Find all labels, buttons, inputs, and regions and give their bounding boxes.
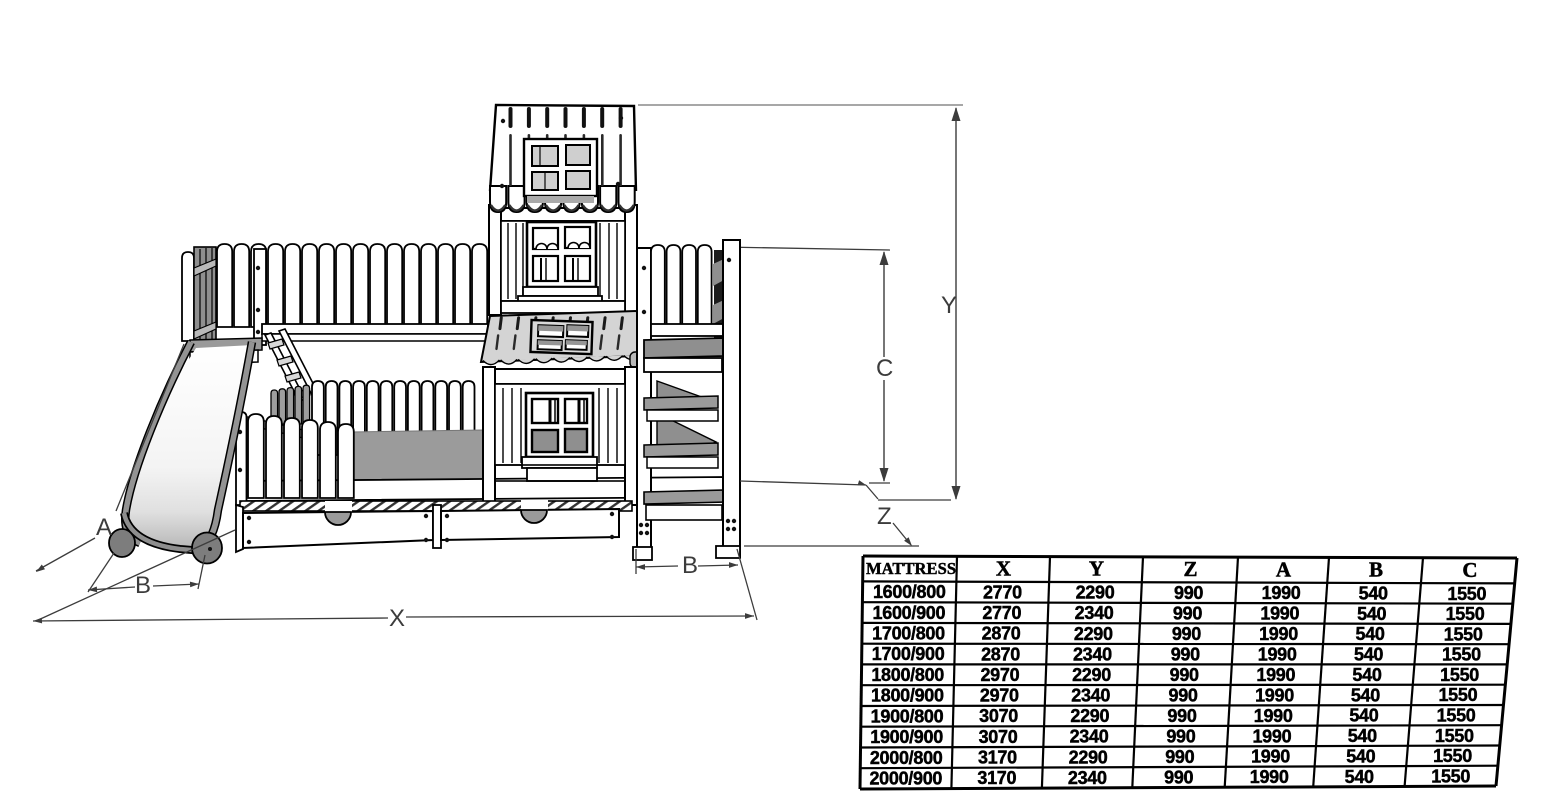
- svg-text:2340: 2340: [1071, 686, 1110, 706]
- svg-text:1600/800: 1600/800: [873, 582, 946, 602]
- svg-text:2870: 2870: [981, 644, 1020, 664]
- svg-text:2340: 2340: [1075, 603, 1114, 623]
- svg-text:2340: 2340: [1073, 644, 1112, 664]
- svg-text:Y: Y: [941, 292, 957, 319]
- svg-text:990: 990: [1171, 644, 1200, 664]
- svg-text:2770: 2770: [983, 582, 1022, 602]
- svg-text:1990: 1990: [1255, 685, 1294, 705]
- svg-text:Z: Z: [1183, 557, 1197, 581]
- svg-text:990: 990: [1174, 583, 1203, 603]
- svg-text:MATTRESS: MATTRESS: [866, 559, 956, 578]
- svg-text:990: 990: [1167, 706, 1196, 726]
- svg-text:2970: 2970: [980, 665, 1019, 685]
- svg-text:540: 540: [1351, 685, 1380, 705]
- svg-text:2340: 2340: [1068, 768, 1107, 788]
- svg-text:540: 540: [1356, 624, 1385, 644]
- svg-text:990: 990: [1172, 624, 1201, 644]
- svg-text:C: C: [876, 355, 893, 382]
- svg-text:1550: 1550: [1431, 766, 1470, 786]
- svg-text:2290: 2290: [1072, 665, 1111, 685]
- svg-text:1900/900: 1900/900: [870, 727, 943, 747]
- svg-text:1990: 1990: [1258, 645, 1297, 665]
- svg-text:1550: 1550: [1437, 706, 1476, 726]
- svg-text:1550: 1550: [1442, 645, 1481, 665]
- svg-text:C: C: [1462, 558, 1477, 582]
- svg-text:1990: 1990: [1256, 665, 1295, 685]
- svg-text:540: 540: [1354, 645, 1383, 665]
- svg-text:2870: 2870: [982, 624, 1021, 644]
- svg-text:2000/900: 2000/900: [869, 769, 942, 789]
- svg-text:1550: 1550: [1435, 726, 1474, 746]
- svg-text:2340: 2340: [1070, 727, 1109, 747]
- svg-text:540: 540: [1345, 767, 1374, 787]
- svg-text:Z: Z: [877, 503, 892, 530]
- svg-text:1990: 1990: [1260, 604, 1299, 624]
- svg-text:2970: 2970: [980, 686, 1019, 706]
- svg-text:1550: 1550: [1438, 685, 1477, 705]
- svg-text:1600/900: 1600/900: [873, 603, 946, 623]
- svg-text:990: 990: [1170, 665, 1199, 685]
- svg-text:1990: 1990: [1250, 767, 1289, 787]
- svg-text:540: 540: [1346, 746, 1375, 766]
- svg-text:1700/800: 1700/800: [872, 624, 945, 644]
- svg-text:990: 990: [1164, 768, 1193, 788]
- svg-text:2290: 2290: [1069, 747, 1108, 767]
- svg-text:540: 540: [1348, 726, 1377, 746]
- svg-text:1990: 1990: [1254, 706, 1293, 726]
- svg-text:1800/800: 1800/800: [871, 665, 944, 685]
- svg-text:2290: 2290: [1076, 583, 1115, 603]
- svg-text:540: 540: [1357, 604, 1386, 624]
- svg-text:1800/900: 1800/900: [871, 686, 944, 706]
- svg-text:B: B: [1369, 558, 1383, 582]
- svg-text:Y: Y: [1089, 557, 1104, 581]
- svg-text:1550: 1550: [1444, 624, 1483, 644]
- svg-text:2770: 2770: [982, 603, 1021, 623]
- svg-text:1550: 1550: [1440, 665, 1479, 685]
- svg-text:990: 990: [1173, 603, 1202, 623]
- svg-text:X: X: [389, 605, 405, 632]
- svg-text:B: B: [135, 572, 151, 599]
- svg-text:1700/900: 1700/900: [872, 644, 945, 664]
- svg-text:1550: 1550: [1447, 584, 1486, 604]
- svg-text:3170: 3170: [978, 748, 1017, 768]
- svg-text:1900/800: 1900/800: [871, 706, 944, 726]
- svg-text:A: A: [1276, 557, 1292, 581]
- svg-text:1550: 1550: [1446, 604, 1485, 624]
- svg-text:1550: 1550: [1433, 746, 1472, 766]
- svg-text:540: 540: [1352, 665, 1381, 685]
- svg-text:3070: 3070: [979, 727, 1018, 747]
- svg-text:A: A: [96, 514, 112, 541]
- svg-text:2290: 2290: [1070, 706, 1109, 726]
- svg-text:2290: 2290: [1074, 624, 1113, 644]
- svg-text:1990: 1990: [1259, 624, 1298, 644]
- svg-text:990: 990: [1169, 685, 1198, 705]
- svg-text:1990: 1990: [1251, 747, 1290, 767]
- svg-text:X: X: [996, 556, 1011, 580]
- svg-text:2000/800: 2000/800: [870, 748, 943, 768]
- svg-text:540: 540: [1349, 706, 1378, 726]
- svg-text:990: 990: [1165, 747, 1194, 767]
- svg-text:3170: 3170: [977, 768, 1016, 788]
- svg-text:3070: 3070: [979, 706, 1018, 726]
- svg-text:540: 540: [1359, 584, 1388, 604]
- svg-text:B: B: [682, 552, 698, 579]
- svg-text:990: 990: [1166, 727, 1195, 747]
- svg-text:1990: 1990: [1262, 583, 1301, 603]
- svg-text:1990: 1990: [1252, 726, 1291, 746]
